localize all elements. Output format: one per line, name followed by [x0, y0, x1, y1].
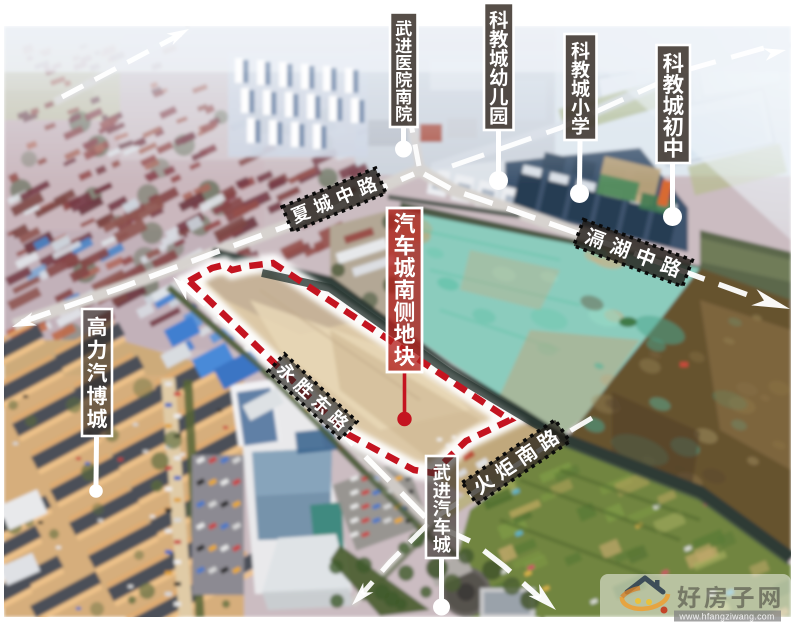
svg-text:www.hfangziwang.com: www.hfangziwang.com — [678, 612, 774, 622]
